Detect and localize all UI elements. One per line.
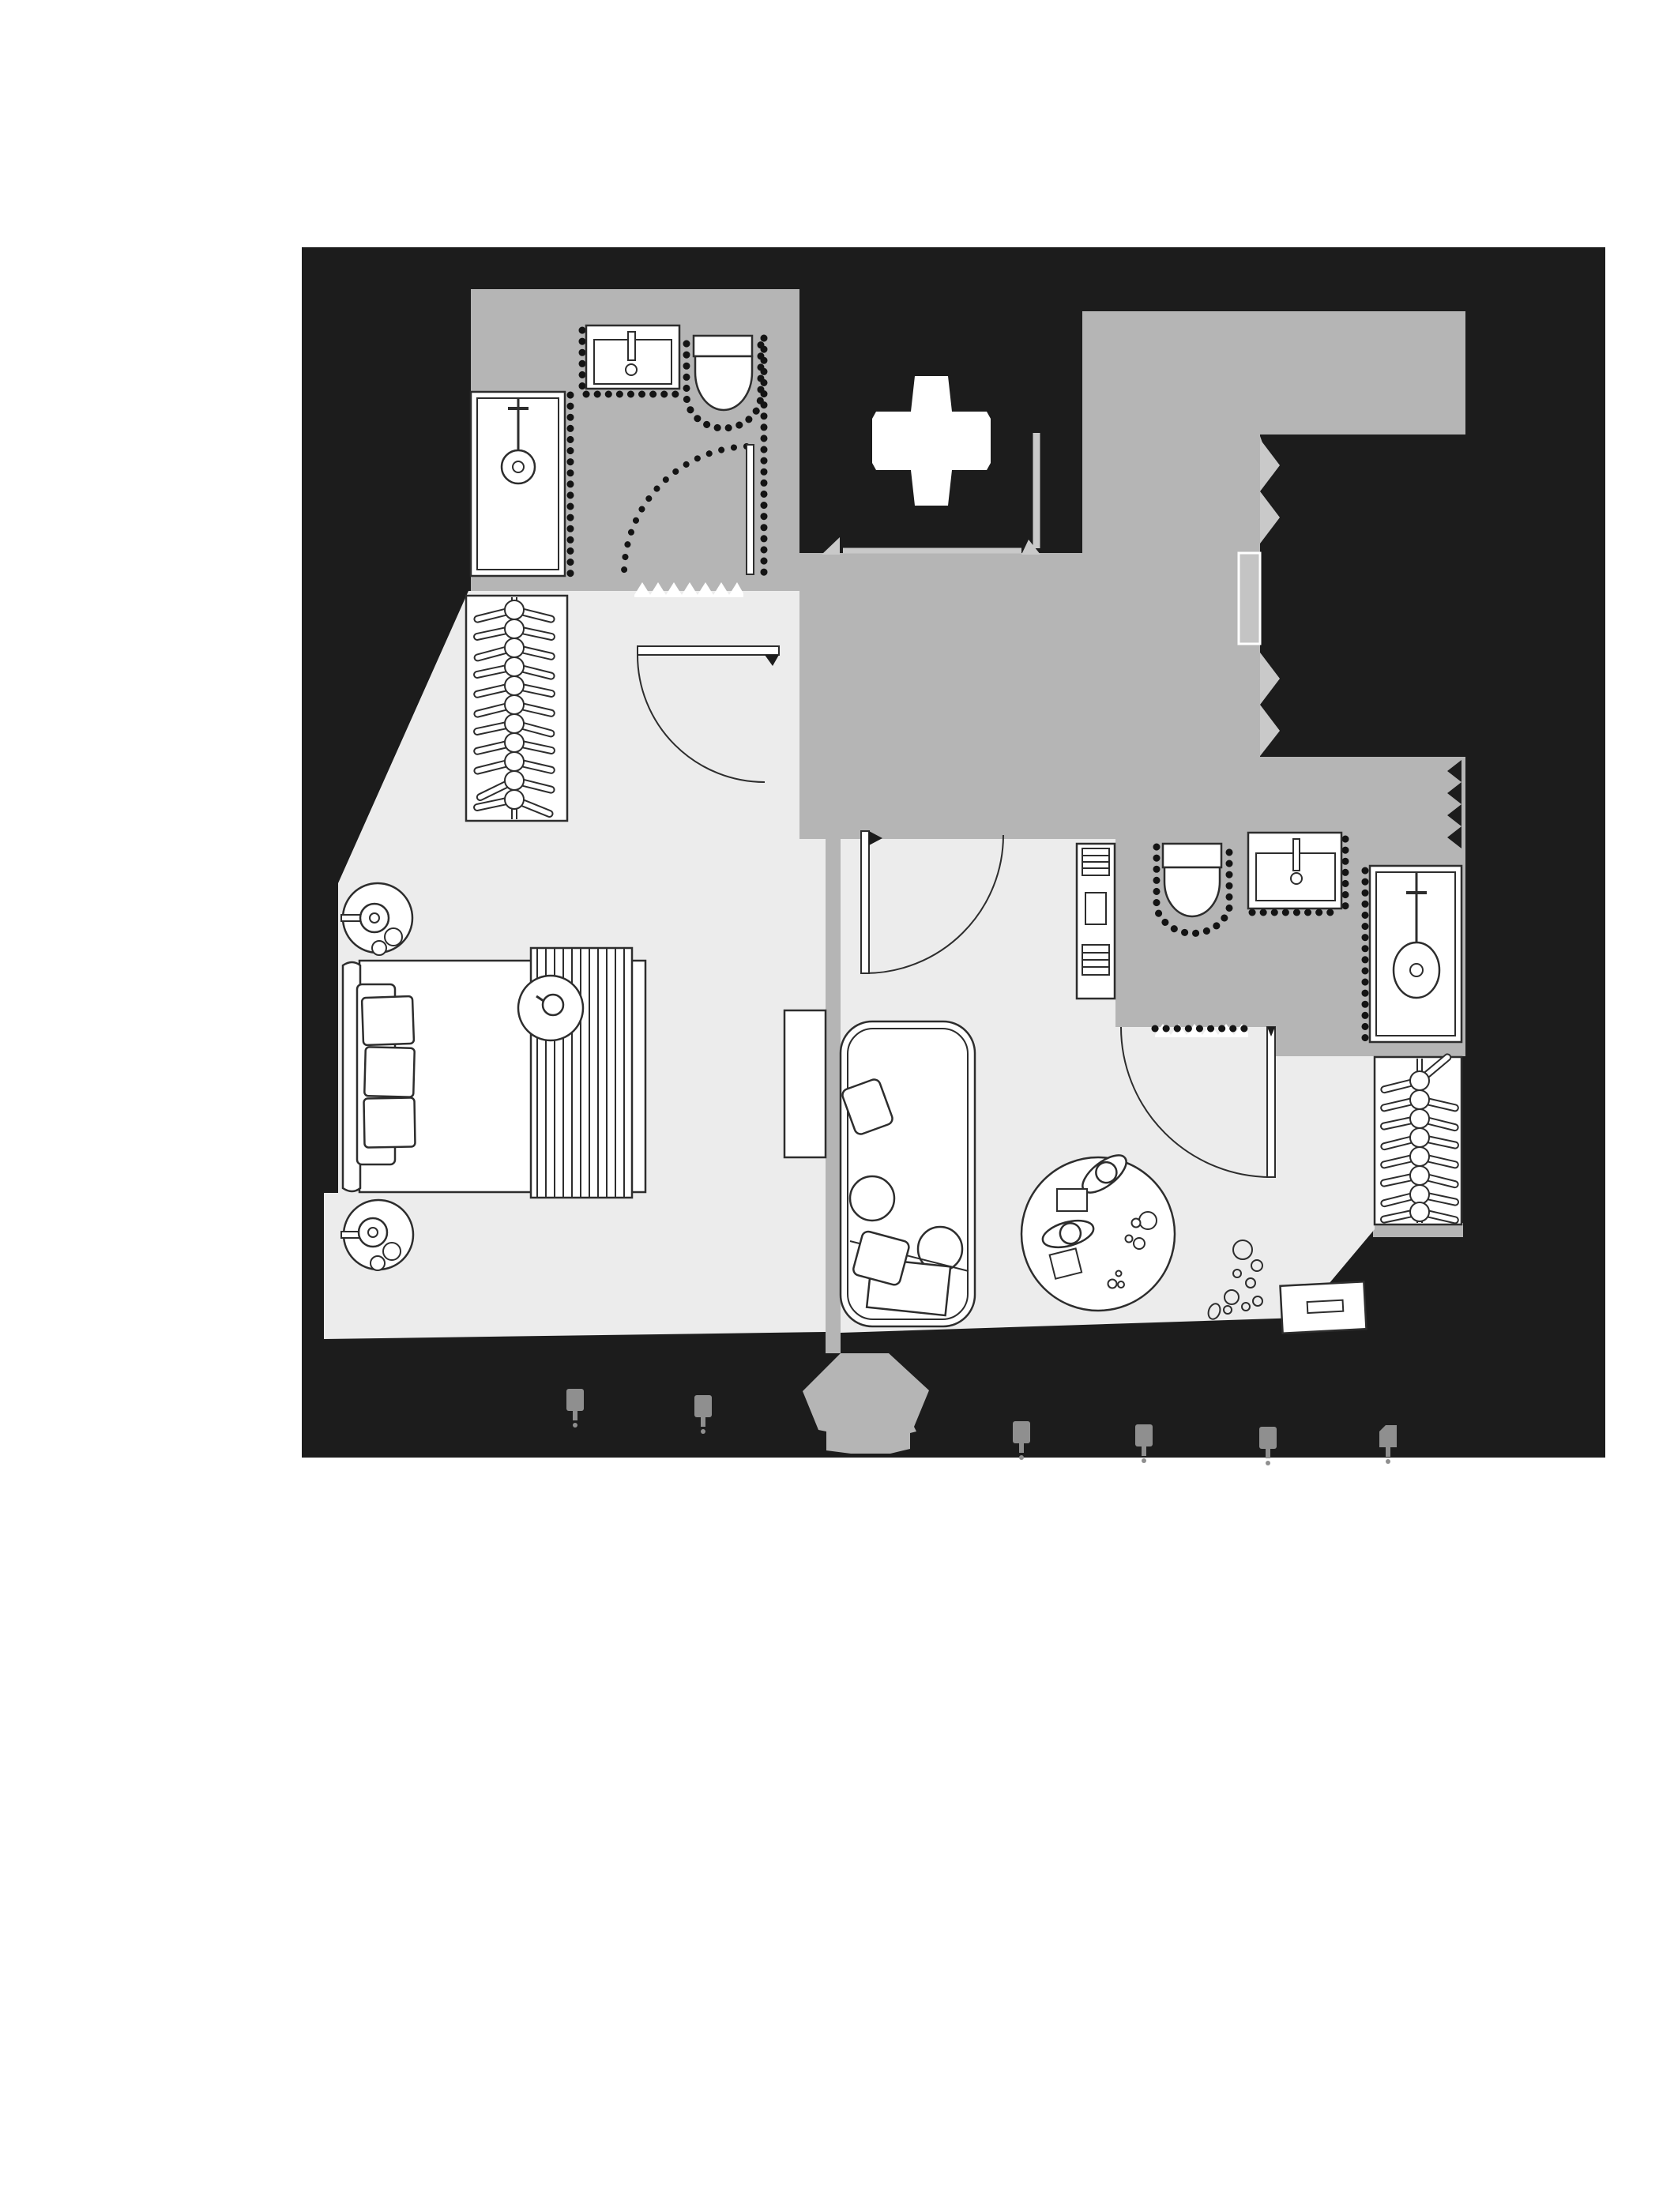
bed-tray-cup <box>543 995 563 1015</box>
bed <box>343 948 645 1198</box>
hanger-hook <box>505 771 524 790</box>
hanger-hook <box>1410 1147 1429 1166</box>
sink-drain <box>626 364 637 375</box>
exterior-lamp-icon <box>1259 1427 1277 1465</box>
lamp-body <box>1259 1427 1277 1449</box>
door-leaf <box>747 445 754 574</box>
entry-mat <box>1281 1281 1367 1333</box>
hanger-hook <box>1410 1185 1429 1204</box>
hanger-hook <box>505 695 524 714</box>
pouf-icon <box>850 1176 894 1221</box>
entry-band-floor <box>1082 311 1465 434</box>
hanger-hook <box>505 676 524 695</box>
toilet-tank <box>694 336 752 356</box>
plan-root <box>302 247 1605 1465</box>
sink-drain <box>1291 873 1302 884</box>
toilet-tank <box>1163 844 1221 867</box>
hanger-hook <box>505 790 524 809</box>
lamp-stem <box>1019 1443 1024 1453</box>
lamp-dot <box>1266 1461 1270 1465</box>
closet-1 <box>466 596 567 821</box>
lamp-dot <box>1386 1459 1390 1464</box>
pebble <box>1139 1212 1157 1229</box>
lamp-stem <box>1142 1446 1146 1456</box>
hanger-hook <box>505 752 524 771</box>
pebble <box>1134 1238 1145 1249</box>
lamp-dot <box>370 913 379 923</box>
lamp-stem <box>1386 1447 1390 1457</box>
hanger-hook <box>1410 1090 1429 1109</box>
pebble <box>1116 1271 1122 1277</box>
hanger-hook <box>505 657 524 676</box>
shower-head-dot <box>1410 964 1423 976</box>
vanity-2 <box>1077 844 1115 999</box>
lamp-stem <box>1266 1449 1270 1458</box>
console-bench <box>784 1010 826 1157</box>
lamp-body <box>1135 1424 1153 1446</box>
door-leaf <box>861 831 869 973</box>
hanger-hook <box>1410 1202 1429 1221</box>
pebble <box>1126 1236 1133 1243</box>
lamp-stem <box>701 1417 705 1427</box>
pebble <box>1224 1290 1239 1304</box>
pebble <box>371 1256 385 1270</box>
pebble <box>383 1243 401 1260</box>
daybed <box>841 1021 975 1326</box>
pillow-icon <box>362 996 414 1045</box>
pebble <box>1242 1303 1250 1311</box>
shower-2 <box>1370 866 1461 1042</box>
pebble <box>1118 1281 1124 1288</box>
lamp-stem <box>573 1411 577 1420</box>
lamp-body <box>1013 1421 1030 1443</box>
vanity-slot <box>1085 893 1106 924</box>
closet-2 <box>1375 1053 1461 1224</box>
shower-head-dot <box>513 461 524 472</box>
cushion <box>1057 1189 1087 1211</box>
hanger-hook <box>505 638 524 657</box>
hanger-hook <box>1410 1166 1429 1185</box>
pillow-icon <box>363 1097 415 1147</box>
toilet-1 <box>694 336 752 410</box>
lamp-dot <box>701 1429 705 1434</box>
hanger-hook <box>1410 1128 1429 1147</box>
toilet-2 <box>1163 844 1221 916</box>
sink-1 <box>586 325 679 389</box>
pebble <box>1233 1240 1252 1259</box>
lamp-dot <box>1019 1455 1024 1460</box>
pillow-icon <box>364 1047 415 1097</box>
lamp-dot <box>573 1423 577 1428</box>
hanger-hook <box>505 733 524 752</box>
sink-faucet-icon <box>1293 839 1300 871</box>
hanger-hook <box>1410 1071 1429 1090</box>
pebble <box>1251 1260 1262 1271</box>
hanger-hook <box>505 714 524 733</box>
sink-faucet-icon <box>628 332 635 360</box>
partition-wall <box>826 831 841 1353</box>
shower-1 <box>471 392 565 576</box>
floor-plan <box>0 0 1659 2212</box>
door-leaf <box>638 646 779 655</box>
exterior-lamp-icon <box>1379 1425 1397 1464</box>
lamp-dot <box>1142 1458 1146 1463</box>
pebble <box>372 941 386 955</box>
door-leaf <box>1267 1027 1275 1177</box>
mat-slot <box>1307 1300 1344 1313</box>
pebble <box>1253 1296 1262 1306</box>
cushion <box>1050 1248 1082 1278</box>
pebble <box>1108 1280 1117 1288</box>
hanger-hook <box>505 619 524 638</box>
pebble <box>1233 1270 1241 1277</box>
pebble <box>385 928 402 946</box>
sink-2 <box>1248 833 1341 908</box>
pebble <box>1132 1219 1141 1228</box>
hanger-hook <box>505 600 524 619</box>
pebble <box>1224 1306 1232 1314</box>
lamp-body <box>694 1395 712 1417</box>
pebble <box>1246 1278 1255 1288</box>
page <box>0 0 1659 2212</box>
lamp-body <box>566 1389 584 1411</box>
hanger-hook <box>1410 1109 1429 1128</box>
wall-niche <box>1239 553 1260 644</box>
lamp-dot <box>368 1228 378 1237</box>
